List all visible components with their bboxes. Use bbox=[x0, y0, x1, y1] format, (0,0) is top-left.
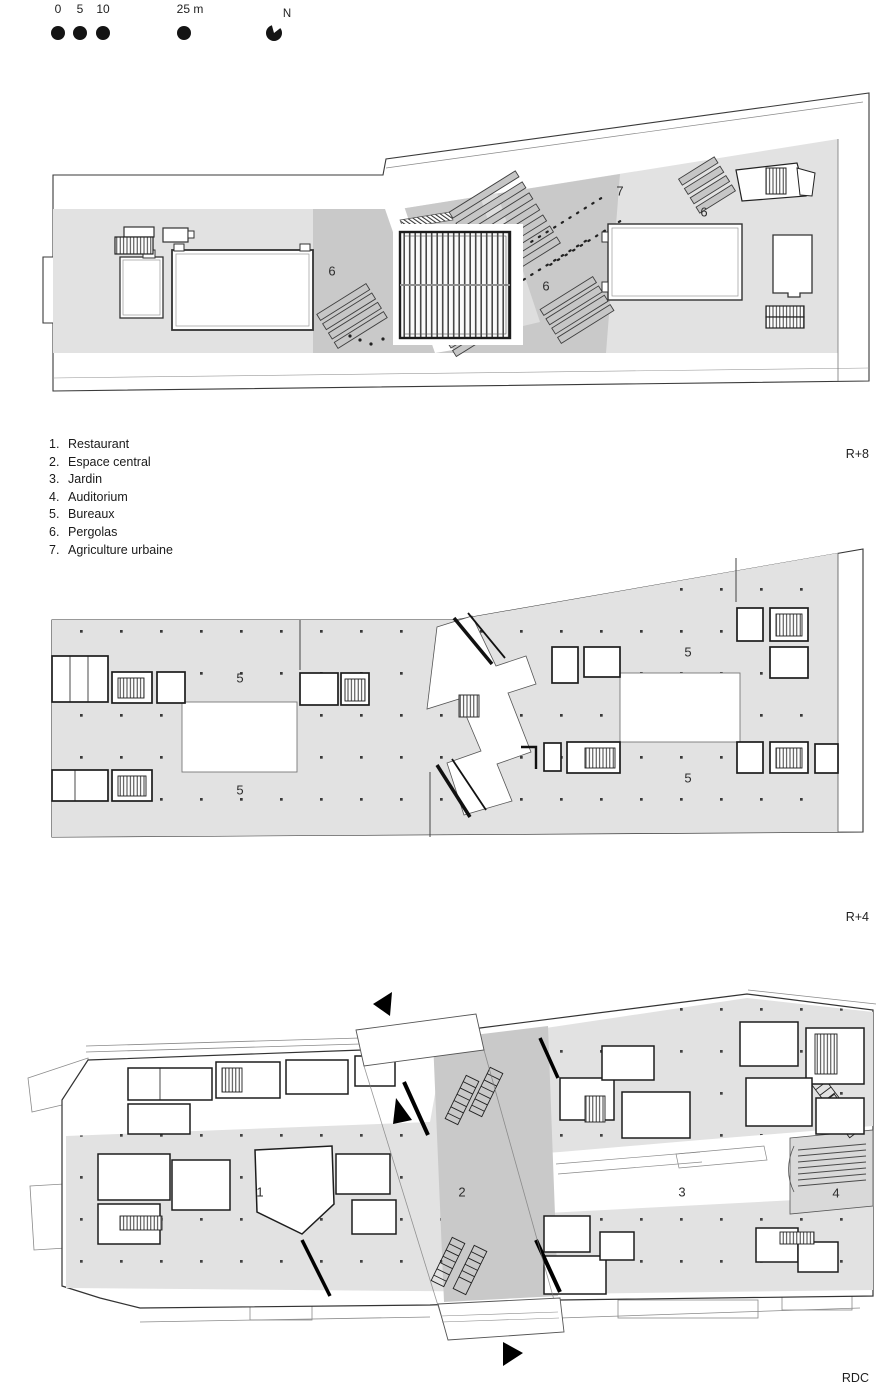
scale-bar-graphic bbox=[51, 26, 191, 40]
rdc-annotation-auditorium: 4 bbox=[832, 1186, 839, 1201]
legend-item-label: Jardin bbox=[68, 472, 102, 486]
legend-item-label: Auditorium bbox=[68, 490, 128, 504]
floor-plan-rdc bbox=[28, 990, 876, 1366]
rdc-annotation-restaurant: 1 bbox=[256, 1185, 263, 1200]
scale-tick-0: 0 bbox=[55, 2, 62, 16]
r4-annotation-bureaux: 5 bbox=[684, 645, 691, 660]
legend-item-label: Restaurant bbox=[68, 437, 129, 451]
legend-item: 7.Agriculture urbaine bbox=[49, 542, 173, 560]
legend-item: 3.Jardin bbox=[49, 471, 173, 489]
north-arrow-icon bbox=[266, 22, 283, 41]
legend-item: 6.Pergolas bbox=[49, 524, 173, 542]
r4-annotation-bureaux: 5 bbox=[236, 671, 243, 686]
scale-tick-5: 5 bbox=[77, 2, 84, 16]
floor-plan-r4 bbox=[52, 549, 863, 837]
r4-annotation-bureaux: 5 bbox=[236, 783, 243, 798]
scale-tick-10: 10 bbox=[96, 2, 109, 16]
legend: 1.Restaurant 2.Espace central 3.Jardin 4… bbox=[49, 436, 173, 559]
section-arrow-bottom bbox=[503, 1342, 523, 1366]
rdc-annotation-espace-central: 2 bbox=[458, 1185, 465, 1200]
level-label-r8: R+8 bbox=[779, 447, 869, 461]
courtyard-west bbox=[182, 702, 297, 772]
rdc-annotation-jardin: 3 bbox=[678, 1185, 685, 1200]
courtyard-east bbox=[620, 673, 740, 742]
legend-item-number: 5. bbox=[49, 506, 68, 524]
legend-item-label: Pergolas bbox=[68, 525, 117, 539]
legend-item-number: 4. bbox=[49, 489, 68, 507]
section-arrow-top bbox=[373, 992, 392, 1016]
level-label-rdc: RDC bbox=[779, 1371, 869, 1385]
legend-item-label: Espace central bbox=[68, 455, 151, 469]
legend-item: 5.Bureaux bbox=[49, 506, 173, 524]
level-label-r4: R+4 bbox=[779, 910, 869, 924]
legend-item: 1.Restaurant bbox=[49, 436, 173, 454]
legend-item-label: Agriculture urbaine bbox=[68, 543, 173, 557]
legend-item-number: 6. bbox=[49, 524, 68, 542]
legend-item-number: 1. bbox=[49, 436, 68, 454]
north-label: N bbox=[283, 8, 291, 20]
auditorium bbox=[789, 1130, 874, 1214]
legend-item-label: Bureaux bbox=[68, 507, 115, 521]
legend-item-number: 7. bbox=[49, 542, 68, 560]
legend-item: 2.Espace central bbox=[49, 454, 173, 472]
legend-item-number: 3. bbox=[49, 471, 68, 489]
r4-annotation-bureaux: 5 bbox=[684, 771, 691, 786]
legend-item-number: 2. bbox=[49, 454, 68, 472]
r8-annotation-pergolas: 6 bbox=[700, 205, 707, 220]
floor-plan-r8 bbox=[43, 93, 869, 391]
r8-annotation-pergolas: 6 bbox=[542, 279, 549, 294]
r8-annotation-pergolas: 6 bbox=[328, 264, 335, 279]
r8-annotation-agriculture: 7 bbox=[616, 184, 623, 199]
scale-tick-25: 25 m bbox=[177, 2, 204, 16]
drawing-sheet: 0 5 10 25 m N 1.Restaurant 2.Espace cent… bbox=[0, 0, 887, 1397]
drawing-canvas bbox=[0, 0, 887, 1397]
legend-item: 4.Auditorium bbox=[49, 489, 173, 507]
